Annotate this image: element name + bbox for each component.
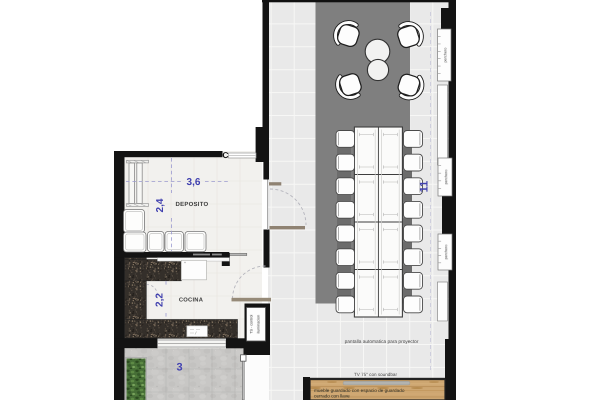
svg-text:perchero: perchero — [444, 170, 448, 185]
svg-text:perchero: perchero — [444, 245, 448, 260]
svg-text:TV 75" con soundbar: TV 75" con soundbar — [354, 372, 397, 377]
svg-text:3,6: 3,6 — [187, 177, 201, 188]
svg-text:mueble guardado con espacio de: mueble guardado con espacio de guardado — [314, 388, 405, 393]
svg-text:COCINA: COCINA — [179, 296, 204, 303]
svg-text:11: 11 — [419, 181, 431, 193]
svg-text:3: 3 — [176, 362, 182, 374]
svg-text:pantalla automatica para proye: pantalla automatica para proyector — [345, 339, 419, 345]
svg-text:C: C — [222, 150, 228, 160]
svg-text:iluminacion: iluminacion — [257, 315, 261, 333]
svg-text:2,2: 2,2 — [155, 293, 166, 307]
svg-text:2,4: 2,4 — [155, 198, 166, 212]
svg-text:TS - control: TS - control — [250, 314, 254, 333]
svg-text:perchero: perchero — [443, 48, 447, 63]
svg-text:DEPOSITO: DEPOSITO — [176, 201, 209, 208]
svg-text:cerrado con llave: cerrado con llave — [314, 394, 350, 399]
